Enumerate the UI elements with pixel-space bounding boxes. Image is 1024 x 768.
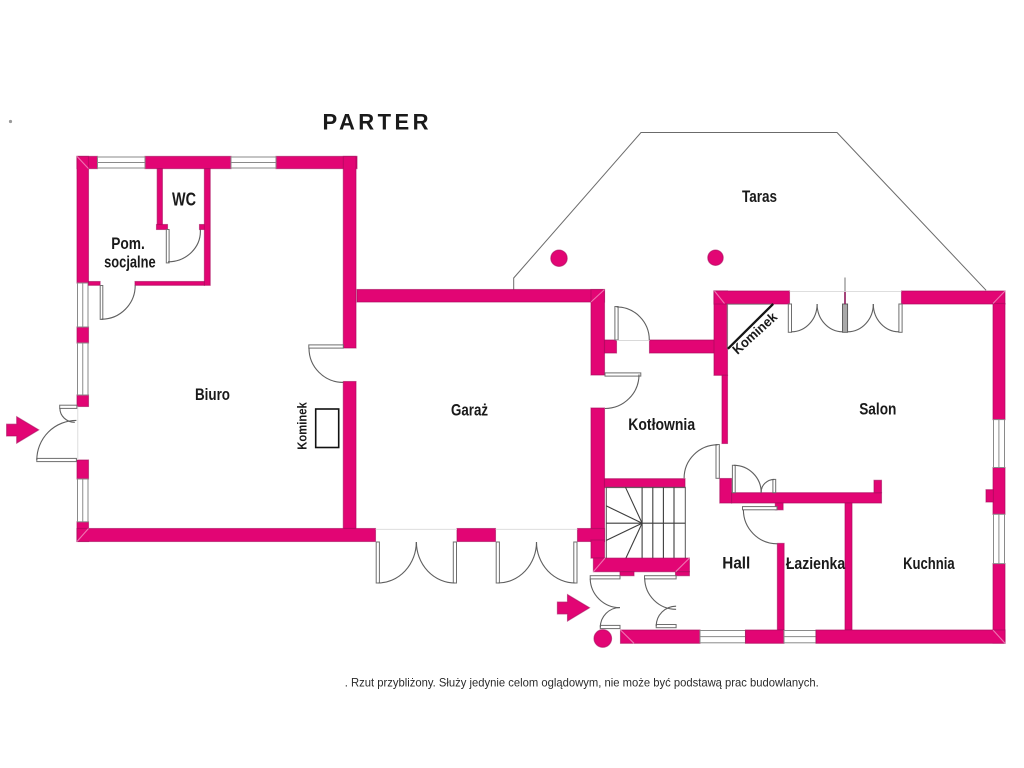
svg-text:Kuchnia: Kuchnia xyxy=(903,554,955,573)
svg-text:PARTER: PARTER xyxy=(323,110,433,135)
svg-text:Kominek: Kominek xyxy=(295,402,310,450)
svg-text:WC: WC xyxy=(172,190,196,210)
svg-text:Hall: Hall xyxy=(722,554,750,573)
svg-text:Kotłownia: Kotłownia xyxy=(628,415,695,434)
svg-text:Garaż: Garaż xyxy=(451,401,488,420)
svg-text:Łazienka: Łazienka xyxy=(786,554,846,573)
svg-text:socjalne: socjalne xyxy=(104,252,156,271)
svg-text:Biuro: Biuro xyxy=(195,385,230,404)
svg-text:Pom.: Pom. xyxy=(111,234,145,253)
svg-text:Salon: Salon xyxy=(859,400,896,419)
svg-text:. Rzut przybliżony. Służy jedy: . Rzut przybliżony. Służy jedynie celom … xyxy=(345,676,819,690)
svg-text:Taras: Taras xyxy=(742,187,777,206)
